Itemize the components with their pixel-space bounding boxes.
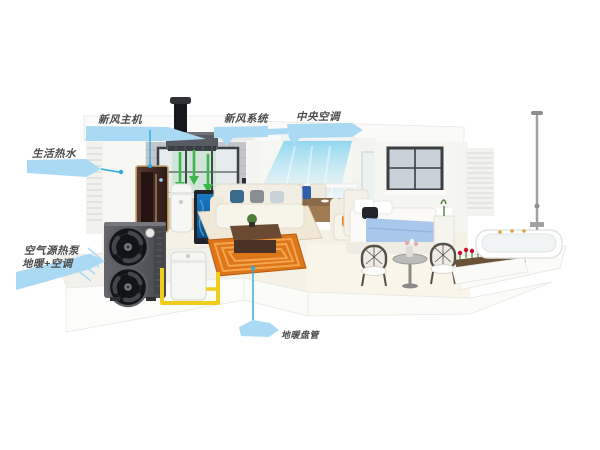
water-softener-tank: [171, 184, 192, 232]
brand-logo: [146, 229, 155, 238]
heat-pump-home-diagram: 新风主机 新风系统 中央空调 生活热水 空气源热泵 地暖+空调 地暖盘管: [0, 0, 600, 450]
dark-pillow: [362, 207, 378, 219]
pillow-light: [270, 191, 284, 203]
shower-head: [531, 111, 543, 115]
bedroom-window: [384, 148, 446, 195]
label-fresh-air-system: 新风系统: [224, 112, 270, 125]
callout-floor-heating: [239, 320, 279, 337]
label-heat-pump-line1: 空气源热泵: [24, 244, 80, 257]
bathtub: [476, 229, 562, 258]
label-hot-water: 生活热水: [32, 147, 77, 160]
heat-pump-outdoor-unit: [104, 222, 166, 306]
sofa: [210, 184, 304, 230]
pillow-gray: [250, 190, 264, 203]
callout-hot-water: [27, 159, 101, 177]
callout-connector: [268, 128, 288, 135]
pillow-teal: [230, 190, 244, 203]
label-central-ac: 中央空调: [296, 110, 342, 123]
blue-vase: [302, 186, 311, 199]
shower-faucet: [530, 222, 544, 227]
label-floor-heating: 地暖盘管: [281, 330, 321, 340]
label-heat-pump-line2: 地暖+空调: [22, 257, 75, 270]
shower-column: [530, 111, 544, 230]
fan-top: [108, 227, 148, 267]
house-illustration: 新风主机 新风系统 中央空调 生活热水 空气源热泵 地暖+空调 地暖盘管: [0, 0, 600, 450]
label-fresh-air-unit: 新风主机: [98, 113, 143, 126]
buffer-tank: [171, 252, 206, 300]
right-louver-wall: [466, 148, 494, 216]
left-louver-wall: [86, 142, 103, 234]
patio-vase: [406, 246, 413, 257]
